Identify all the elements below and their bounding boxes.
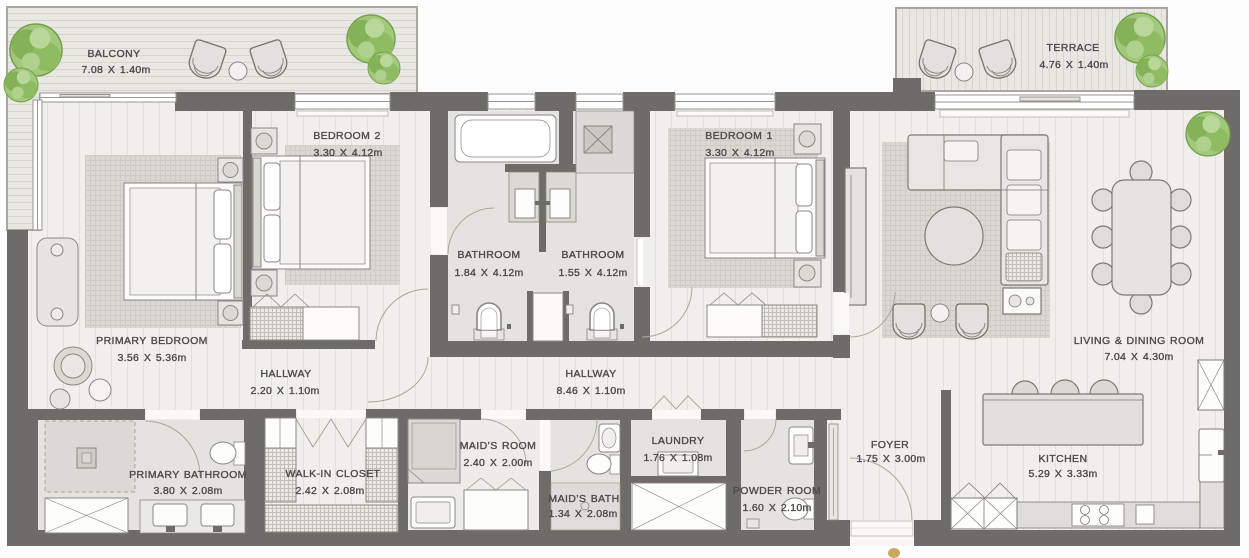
svg-text:1.76 X 1.08m: 1.76 X 1.08m	[643, 452, 712, 464]
svg-text:3.80 X 2.08m: 3.80 X 2.08m	[153, 485, 222, 497]
svg-text:POWDER ROOM: POWDER ROOM	[733, 485, 821, 497]
svg-text:1.75 X 3.00m: 1.75 X 3.00m	[856, 453, 925, 465]
svg-text:BEDROOM 1: BEDROOM 1	[705, 130, 773, 142]
svg-text:HALLWAY: HALLWAY	[260, 368, 311, 380]
svg-text:WALK-IN CLOSET: WALK-IN CLOSET	[286, 468, 381, 480]
svg-text:1.84 X 4.12m: 1.84 X 4.12m	[454, 267, 523, 279]
svg-text:HALLWAY: HALLWAY	[565, 368, 616, 380]
svg-text:BALCONY: BALCONY	[88, 48, 141, 60]
svg-text:3.30 X 4.12m: 3.30 X 4.12m	[705, 147, 774, 159]
svg-text:2.42 X 2.08m: 2.42 X 2.08m	[295, 485, 364, 497]
svg-text:1.55 X 4.12m: 1.55 X 4.12m	[558, 267, 627, 279]
svg-text:1.34 X 2.08m: 1.34 X 2.08m	[548, 508, 617, 520]
svg-text:5.29 X 3.33m: 5.29 X 3.33m	[1028, 468, 1097, 480]
svg-text:LIVING & DINING ROOM: LIVING & DINING ROOM	[1074, 335, 1205, 347]
svg-text:FOYER: FOYER	[871, 439, 909, 451]
svg-text:LAUNDRY: LAUNDRY	[652, 435, 705, 447]
svg-text:PRIMARY BATHROOM: PRIMARY BATHROOM	[129, 469, 247, 481]
svg-text:BATHROOM: BATHROOM	[561, 249, 624, 261]
svg-text:KITCHEN: KITCHEN	[1039, 453, 1088, 465]
svg-text:BEDROOM 2: BEDROOM 2	[313, 130, 381, 142]
svg-text:7.08 X 1.40m: 7.08 X 1.40m	[81, 64, 150, 76]
svg-text:3.56 X 5.36m: 3.56 X 5.36m	[117, 352, 186, 364]
svg-text:7.04 X 4.30m: 7.04 X 4.30m	[1104, 351, 1173, 363]
svg-text:PRIMARY BEDROOM: PRIMARY BEDROOM	[96, 335, 208, 347]
svg-text:8.46 X 1.10m: 8.46 X 1.10m	[556, 385, 625, 397]
svg-text:1.60 X 2.10m: 1.60 X 2.10m	[742, 502, 811, 514]
svg-text:4.76 X 1.40m: 4.76 X 1.40m	[1039, 59, 1108, 71]
svg-text:MAID’S ROOM: MAID’S ROOM	[460, 440, 537, 452]
svg-text:MAID’S BATH: MAID’S BATH	[548, 493, 619, 505]
svg-text:BATHROOM: BATHROOM	[457, 249, 520, 261]
svg-text:TERRACE: TERRACE	[1047, 42, 1100, 54]
svg-text:2.20 X 1.10m: 2.20 X 1.10m	[250, 385, 319, 397]
svg-text:3.30 X 4.12m: 3.30 X 4.12m	[313, 147, 382, 159]
svg-text:2.40 X 2.00m: 2.40 X 2.00m	[463, 457, 532, 469]
